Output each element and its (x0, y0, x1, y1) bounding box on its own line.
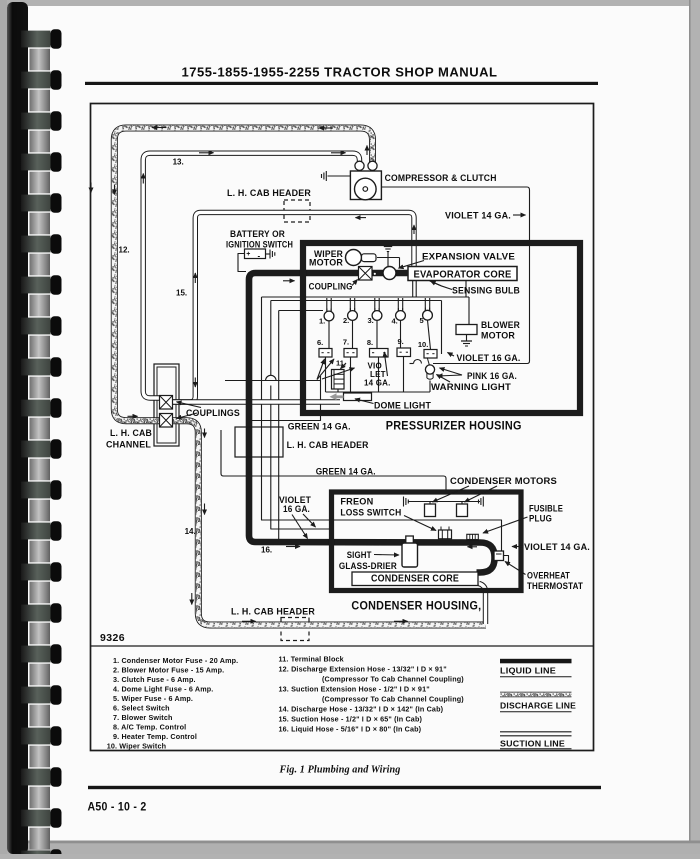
svg-text:16 GA.: 16 GA. (283, 503, 310, 514)
svg-text:9.: 9. (398, 337, 404, 346)
svg-text:6. Select Switch: 6. Select Switch (113, 704, 170, 713)
svg-text:SUCTION LINE: SUCTION LINE (500, 739, 565, 749)
svg-text:-: - (258, 251, 261, 260)
svg-text:6.: 6. (317, 338, 323, 347)
svg-text:14. Discharge Hose - 13/32" I: 14. Discharge Hose - 13/32" I D × 142" (… (279, 704, 444, 713)
svg-text:DISCHARGE LINE: DISCHARGE LINE (500, 701, 576, 711)
svg-text:L. H. CAB: L. H. CAB (110, 427, 152, 438)
svg-text:(Compressor To Cab Channel Cou: (Compressor To Cab Channel Coupling) (322, 674, 464, 683)
svg-text:16.: 16. (261, 546, 272, 555)
svg-text:8.: 8. (367, 338, 373, 347)
svg-text:15.: 15. (176, 289, 187, 298)
svg-text:5. Wiper Fuse - 6 Amp.: 5. Wiper Fuse - 6 Amp. (113, 694, 193, 703)
svg-text:CONDENSER CORE: CONDENSER CORE (371, 574, 459, 585)
svg-text:EXPANSION VALVE: EXPANSION VALVE (422, 251, 515, 262)
svg-text:CONDENSER MOTORS: CONDENSER MOTORS (450, 475, 557, 486)
svg-text:OVERHEAT: OVERHEAT (527, 570, 570, 581)
svg-text:CHANNEL: CHANNEL (106, 439, 151, 450)
svg-text:COMPRESSOR & CLUTCH: COMPRESSOR & CLUTCH (385, 172, 497, 183)
svg-text:CONDENSER HOUSING,: CONDENSER HOUSING, (351, 599, 481, 613)
svg-text:COUPLING: COUPLING (309, 281, 353, 292)
svg-text:L. H. CAB HEADER: L. H. CAB HEADER (231, 606, 315, 617)
svg-text:(Compressor To Cab Channel Cou: (Compressor To Cab Channel Coupling) (322, 694, 464, 703)
svg-text:SIGHT: SIGHT (347, 549, 372, 560)
svg-text:10.: 10. (418, 340, 428, 349)
svg-text:7.: 7. (343, 338, 349, 347)
svg-text:PRESSURIZER HOUSING: PRESSURIZER HOUSING (386, 419, 522, 433)
svg-text:3.: 3. (368, 316, 374, 325)
svg-text:9. Heater Temp. Control: 9. Heater Temp. Control (113, 732, 197, 741)
svg-text:GREEN 14 GA.: GREEN 14 GA. (288, 420, 351, 431)
svg-text:4. Dome Light Fuse - 6 Amp.: 4. Dome Light Fuse - 6 Amp. (113, 685, 213, 694)
svg-text:10. Wiper Switch: 10. Wiper Switch (107, 742, 166, 751)
svg-text:COUPLINGS: COUPLINGS (186, 407, 240, 418)
svg-text:FREON: FREON (340, 496, 373, 507)
svg-text:LIQUID LINE: LIQUID LINE (500, 666, 556, 676)
svg-text:BATTERY OR: BATTERY OR (230, 228, 285, 239)
svg-text:+: + (246, 251, 250, 258)
svg-text:12. Discharge Extension Hose -: 12. Discharge Extension Hose - 13/32" I … (279, 664, 447, 673)
svg-text:L. H. CAB HEADER: L. H. CAB HEADER (227, 187, 311, 198)
svg-text:3. Clutch Fuse - 6 Amp.: 3. Clutch Fuse - 6 Amp. (113, 675, 196, 684)
svg-text:DOME LIGHT: DOME LIGHT (374, 400, 431, 411)
svg-text:16. Liquid Hose - 5/16" I D ×: 16. Liquid Hose - 5/16" I D × 80" (In Ca… (279, 724, 422, 733)
svg-text:1755-1855-1955-2255 TRACTOR SH: 1755-1855-1955-2255 TRACTOR SHOP MANUAL (182, 65, 498, 80)
svg-text:2. Blower Motor Fuse - 15 Amp.: 2. Blower Motor Fuse - 15 Amp. (113, 666, 224, 675)
svg-text:PINK 16 GA.: PINK 16 GA. (467, 370, 517, 381)
svg-text:LOSS SWITCH: LOSS SWITCH (340, 507, 401, 518)
svg-text:A50 - 10 - 2: A50 - 10 - 2 (88, 802, 147, 814)
svg-text:11.: 11. (336, 359, 346, 368)
svg-text:12.: 12. (119, 246, 130, 255)
svg-text:15. Suction Hose - 1/2" I D ×: 15. Suction Hose - 1/2" I D × 65" (In Ca… (279, 714, 423, 723)
svg-text:4.: 4. (392, 317, 398, 326)
svg-text:GREEN 14 GA.: GREEN 14 GA. (316, 466, 376, 477)
svg-text:11. Terminal Block: 11. Terminal Block (279, 654, 344, 663)
svg-text:7. Blower Switch: 7. Blower Switch (113, 713, 173, 722)
svg-text:VIOLET 16 GA.: VIOLET 16 GA. (457, 352, 521, 363)
svg-text:VIOLET 14 GA.: VIOLET 14 GA. (524, 541, 590, 552)
svg-text:14.: 14. (185, 527, 196, 536)
svg-text:9326: 9326 (100, 633, 125, 644)
svg-text:2.: 2. (343, 316, 349, 325)
svg-text:MOTOR: MOTOR (481, 330, 515, 341)
svg-text:13. Suction Extension Hose - 1: 13. Suction Extension Hose - 1/2" I D × … (279, 684, 430, 693)
svg-text:MOTOR: MOTOR (309, 257, 343, 268)
svg-text:14 GA.: 14 GA. (364, 379, 391, 388)
svg-text:VIOLET 14 GA.: VIOLET 14 GA. (445, 210, 511, 221)
svg-text:THERMOSTAT: THERMOSTAT (527, 580, 583, 591)
svg-text:SENSING BULB: SENSING BULB (452, 285, 520, 296)
svg-text:IGNITION SWITCH: IGNITION SWITCH (226, 239, 293, 250)
svg-text:13.: 13. (173, 158, 184, 167)
svg-text:WARNING LIGHT: WARNING LIGHT (431, 381, 511, 392)
svg-text:L. H. CAB HEADER: L. H. CAB HEADER (287, 439, 369, 450)
svg-text:1.: 1. (319, 317, 325, 326)
svg-text:BLOWER: BLOWER (481, 319, 520, 330)
svg-text:EVAPORATOR CORE: EVAPORATOR CORE (414, 270, 512, 281)
svg-text:PLUG: PLUG (529, 513, 552, 524)
svg-text:Fig. 1 Plumbing and Wiring: Fig. 1 Plumbing and Wiring (278, 765, 400, 776)
svg-text:8. A/C Temp. Control: 8. A/C Temp. Control (113, 723, 186, 732)
svg-text:GLASS-DRIER: GLASS-DRIER (339, 560, 397, 571)
svg-text:5: 5 (420, 316, 424, 325)
svg-text:1. Condenser Motor Fuse - 20 A: 1. Condenser Motor Fuse - 20 Amp. (113, 656, 238, 665)
